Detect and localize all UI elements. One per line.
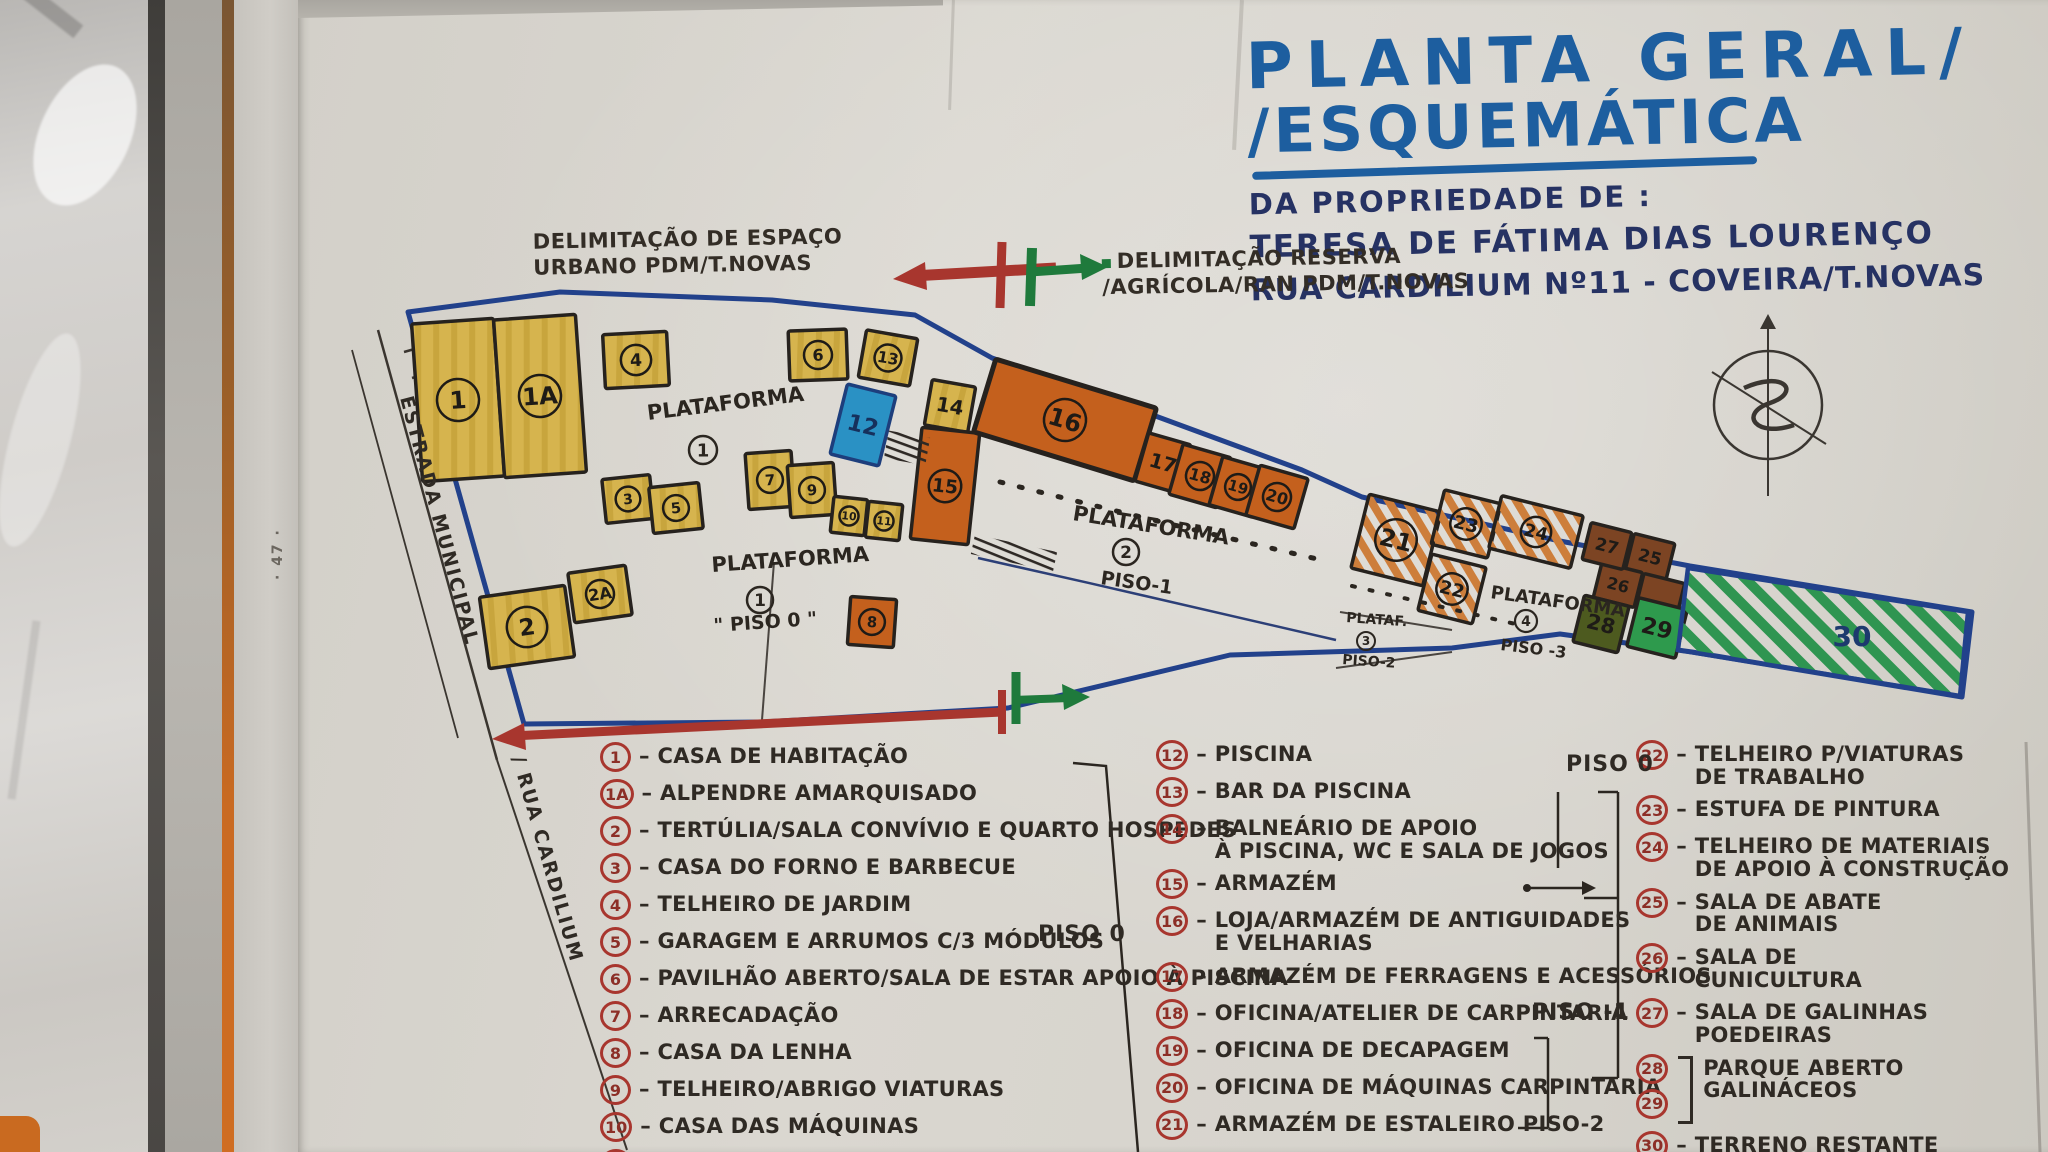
legend-number: 18 — [1156, 999, 1188, 1029]
svg-text:PISO -3: PISO -3 — [1500, 635, 1568, 662]
svg-text:10: 10 — [841, 509, 858, 524]
svg-text:5: 5 — [670, 500, 682, 518]
plot-10: 10 — [830, 496, 868, 535]
legend-dash: – — [1196, 1036, 1207, 1064]
svg-text:1: 1 — [754, 591, 766, 611]
plot-2A: 2A — [568, 565, 632, 623]
legend-dash: – — [1196, 962, 1207, 990]
plot-13: 13 — [858, 330, 918, 386]
legend-number: 25 — [1636, 888, 1668, 918]
legend-item: 13–BAR DA PISCINA — [1156, 777, 1626, 807]
legend-number: 17 — [1156, 962, 1188, 992]
legend-text: SALA DE GALINHASPOEDEIRAS — [1695, 998, 1928, 1046]
legend-text: TELHEIRO DE MATERIAISDE APOIO À CONSTRUÇ… — [1695, 832, 2009, 880]
legend-number: 3 — [600, 853, 631, 883]
legend-number: 19 — [1156, 1036, 1188, 1066]
legend-text: BALNEÁRIO DE APOIOÀ PISCINA, WC E SALA D… — [1215, 814, 1609, 862]
legend-item: 20–OFICINA DE MÁQUINAS CARPINTARIA — [1156, 1073, 1626, 1103]
legend-number: 8 — [600, 1038, 631, 1068]
legend-item: 14–BALNEÁRIO DE APOIOÀ PISCINA, WC E SAL… — [1156, 814, 1626, 862]
legend-number: 10 — [600, 1112, 632, 1142]
legend-number: 23 — [1636, 795, 1668, 825]
svg-text:6: 6 — [812, 345, 824, 364]
legend-text: TERTÚLIA/SALA CONVÍVIO E QUARTO HOSPEDES — [658, 816, 1237, 842]
legend-item: 2829PARQUE ABERTOGALINÁCEOS — [1636, 1054, 2048, 1124]
legend-column-1: 1–CASA DE HABITAÇÃO1A–ALPENDRE AMARQUISA… — [600, 742, 1160, 1152]
piso0-label-col3: PISO 0 — [1566, 752, 1654, 777]
margin-note: · 47 · — [270, 528, 286, 580]
plot-2: 2 — [479, 585, 574, 668]
legend-column-2: 12–PISCINA13–BAR DA PISCINA14–BALNEÁRIO … — [1156, 740, 1626, 1147]
compass-icon — [1712, 314, 1826, 496]
legend-dash: – — [1196, 906, 1207, 934]
legend-dash: – — [1196, 814, 1207, 842]
svg-text:1: 1 — [449, 386, 468, 415]
svg-text:2: 2 — [1120, 543, 1132, 563]
svg-text:" PISO 0 ": " PISO 0 " — [713, 608, 818, 637]
plot-5: 5 — [649, 483, 704, 534]
legend-dash: – — [1676, 795, 1687, 823]
plot-11: 11 — [865, 501, 903, 540]
legend-dash: – — [639, 816, 650, 844]
legend-dash: – — [639, 964, 650, 992]
legend-item: 4–TELHEIRO DE JARDIM — [600, 890, 1160, 920]
legend-text: TELHEIRO/ABRIGO VIATURAS — [658, 1075, 1005, 1101]
legend-dash: – — [639, 853, 650, 881]
svg-text:8: 8 — [866, 614, 877, 632]
legend-item: 9–TELHEIRO/ABRIGO VIATURAS — [600, 1075, 1160, 1105]
legend-dash: – — [1196, 999, 1207, 1027]
platform-1-label: PLATAFORMA — [646, 382, 806, 425]
title-subtitle: DA PROPRIEDADE DE : — [1248, 171, 2048, 222]
legend-dash: – — [1196, 1073, 1207, 1101]
legend-number: 6 — [600, 964, 631, 994]
legend-text: ARRECADAÇÃO — [658, 1001, 839, 1027]
plot-30: 30 — [1678, 568, 1968, 696]
legend-dash: – — [1676, 888, 1687, 916]
legend-text: TELHEIRO DE JARDIM — [658, 890, 912, 916]
reserve-delimitation-arrow-bottom — [1014, 672, 1090, 724]
legend-item: 24–TELHEIRO DE MATERIAISDE APOIO À CONST… — [1636, 832, 2048, 880]
legend-number: 15 — [1156, 869, 1188, 899]
legend-number: 7 — [600, 1001, 631, 1031]
legend-text: CASA DO FORNO E BARBECUE — [658, 853, 1017, 879]
reserve-delimitation-note: DELIMITAÇÃO RESERVA /AGRÍCOLA/RAN PDM/T.… — [1102, 242, 1470, 301]
legend-dash: – — [1676, 1131, 1687, 1152]
legend-number: 2 — [600, 816, 631, 846]
legend-dash: – — [1196, 740, 1207, 768]
legend-number: 14 — [1156, 814, 1188, 844]
legend-text: ARMAZÉM DE ESTALEIRO PISO-2 — [1215, 1110, 1605, 1136]
legend-dash: – — [639, 890, 650, 918]
legend-item: 3–CASA DO FORNO E BARBECUE — [600, 853, 1160, 883]
legend-text: ALPENDRE AMARQUISADO — [660, 779, 977, 805]
legend-text: TELHEIRO P/VIATURASDE TRABALHO — [1695, 740, 1965, 788]
legend-item: 19–OFICINA DE DECAPAGEM — [1156, 1036, 1626, 1066]
legend-number: 27 — [1636, 998, 1668, 1028]
plot-16: 16 — [974, 359, 1157, 481]
svg-text:4: 4 — [1521, 614, 1531, 630]
legend-dash: – — [639, 927, 650, 955]
legend-number: 28 — [1636, 1054, 1668, 1084]
legend-number: 5 — [600, 927, 631, 957]
legend-dash: – — [639, 1038, 650, 1066]
legend-item: 30–TERRENO RESTANTE — [1636, 1131, 2048, 1152]
platform-3-label: PLATAF. — [1346, 610, 1408, 630]
legend-text: TERRENO RESTANTE — [1695, 1131, 1939, 1152]
legend-column-3: 22–TELHEIRO P/VIATURASDE TRABALHO23–ESTU… — [1636, 740, 2048, 1152]
legend-item: 26–SALA DECUNICULTURA — [1636, 943, 2048, 991]
legend-item: 1A–ALPENDRE AMARQUISADO — [600, 779, 1160, 809]
svg-text:1: 1 — [697, 440, 710, 461]
legend-number: 21 — [1156, 1110, 1188, 1140]
legend-text: PARQUE ABERTOGALINÁCEOS — [1703, 1054, 1903, 1102]
plot-8: 8 — [847, 596, 896, 647]
legend-text: ARMAZÉM — [1215, 869, 1337, 895]
legend-item: 21–ARMAZÉM DE ESTALEIRO PISO-2 — [1156, 1110, 1626, 1140]
legend-item: 15–ARMAZÉM — [1156, 869, 1626, 899]
legend-item: 2–TERTÚLIA/SALA CONVÍVIO E QUARTO HOSPED… — [600, 816, 1160, 846]
piso0-label-mid: PISO 0 — [1038, 922, 1126, 947]
urban-note-line2: URBANO PDM/T.NOVAS — [533, 250, 843, 282]
urban-delimitation-note: DELIMITAÇÃO DE ESPAÇO URBANO PDM/T.NOVAS — [533, 223, 843, 281]
legend-item: 10–CASA DAS MÁQUINAS — [600, 1112, 1160, 1142]
svg-text:13: 13 — [876, 348, 900, 369]
plot-4: 4 — [603, 331, 670, 388]
svg-text:4: 4 — [629, 351, 642, 372]
legend-text: ESTUFA DE PINTURA — [1695, 795, 1940, 821]
legend-item: 17–ARMAZÉM DE FERRAGENS E ACESSÓRIOS — [1156, 962, 1626, 992]
legend-text: OFICINA DE MÁQUINAS CARPINTARIA — [1215, 1073, 1662, 1099]
legend-dash: – — [1676, 740, 1687, 768]
svg-text:2A: 2A — [587, 583, 614, 605]
legend-text: SALA DECUNICULTURA — [1695, 943, 1862, 991]
svg-text:3: 3 — [622, 491, 633, 508]
legend-item: 22–TELHEIRO P/VIATURASDE TRABALHO — [1636, 740, 2048, 788]
platform-2-label: PLATAFORMA — [1071, 501, 1231, 550]
legend-number: 30 — [1636, 1131, 1668, 1152]
legend-number: 29 — [1636, 1089, 1668, 1119]
legend-text: BAR DA PISCINA — [1215, 777, 1411, 803]
legend-text: PISCINA — [1215, 740, 1312, 766]
legend-text: LOJA/ARMAZÉM DE ANTIGUIDADESE VELHARIAS — [1215, 906, 1631, 954]
reserve-delimitation-arrow — [1030, 248, 1108, 306]
legend-item: 23–ESTUFA DE PINTURA — [1636, 795, 2048, 825]
road-label-2: / RUA CARDILIUM — [507, 753, 587, 965]
plot-14: 14 — [924, 380, 975, 433]
plot-9: 9 — [787, 462, 837, 517]
legend-dash: – — [1196, 869, 1207, 897]
legend-item: 12–PISCINA — [1156, 740, 1626, 770]
legend-text: OFICINA DE DECAPAGEM — [1215, 1036, 1510, 1062]
piso-minus1-label: PISO -1 — [1532, 1000, 1630, 1025]
svg-text:15: 15 — [931, 475, 959, 499]
svg-text:1A: 1A — [521, 381, 559, 411]
svg-text:7: 7 — [764, 472, 775, 490]
green-bullet — [1102, 259, 1111, 268]
legend-dash: – — [639, 1001, 650, 1029]
legend-number: 13 — [1156, 777, 1188, 807]
svg-text:PISO-2: PISO-2 — [1342, 652, 1396, 672]
legend-item: 16–LOJA/ARMAZÉM DE ANTIGUIDADESE VELHARI… — [1156, 906, 1626, 954]
legend-item: 27–SALA DE GALINHASPOEDEIRAS — [1636, 998, 2048, 1046]
legend-dash: – — [1196, 1110, 1207, 1138]
legend-text: CASA DAS MÁQUINAS — [659, 1112, 919, 1138]
svg-text:30: 30 — [1833, 620, 1872, 653]
legend-number: 12 — [1156, 740, 1188, 770]
legend-number: 20 — [1156, 1073, 1188, 1103]
legend-dash: – — [639, 742, 650, 770]
svg-text:11: 11 — [876, 514, 893, 529]
legend-dash: – — [1676, 943, 1687, 971]
platform-1-piso0-label: PLATAFORMA — [711, 542, 871, 577]
plot-3: 3 — [602, 475, 654, 524]
plot-6: 6 — [788, 329, 848, 381]
legend-number: 24 — [1636, 832, 1668, 862]
legend-number: 9 — [600, 1075, 631, 1105]
svg-text:3: 3 — [1362, 634, 1370, 648]
legend-dash: – — [1676, 832, 1687, 860]
legend-group-bracket — [1678, 1056, 1693, 1124]
reserve-note-line1: DELIMITAÇÃO RESERVA — [1117, 244, 1402, 273]
svg-text:9: 9 — [806, 482, 817, 500]
legend-number: 1A — [600, 779, 634, 809]
legend-item: 8–CASA DA LENHA — [600, 1038, 1160, 1068]
plot-24: 24 — [1489, 496, 1584, 569]
legend-dash: – — [1196, 777, 1207, 805]
plot-1A: 1A — [494, 314, 587, 477]
legend-dash: – — [642, 779, 653, 807]
svg-text:14: 14 — [934, 393, 965, 420]
legend-number: 4 — [600, 890, 631, 920]
urban-delimitation-arrow-bottom — [492, 690, 1002, 750]
legend-dash: – — [639, 1075, 650, 1103]
legend-text: CASA DA LENHA — [658, 1038, 852, 1064]
legend-item: 25–SALA DE ABATEDE ANIMAIS — [1636, 888, 2048, 936]
legend-number: 26 — [1636, 943, 1668, 973]
legend-text: CASA DE HABITAÇÃO — [658, 742, 909, 768]
legend-number: 16 — [1156, 906, 1188, 936]
photo-of-hand-drawn-site-plan: 11A22A3456789101112131415161718192021222… — [0, 0, 2048, 1152]
legend-number: 1 — [600, 742, 631, 772]
legend-dash: – — [1676, 998, 1687, 1026]
legend-text: SALA DE ABATEDE ANIMAIS — [1695, 888, 1882, 936]
legend-item: 1–CASA DE HABITAÇÃO — [600, 742, 1160, 772]
plot-27: 27 — [1582, 522, 1632, 569]
legend-item: 6–PAVILHÃO ABERTO/SALA DE ESTAR APOIO À … — [600, 964, 1160, 994]
legend-item: 7–ARRECADAÇÃO — [600, 1001, 1160, 1031]
legend-dash: – — [640, 1112, 651, 1140]
